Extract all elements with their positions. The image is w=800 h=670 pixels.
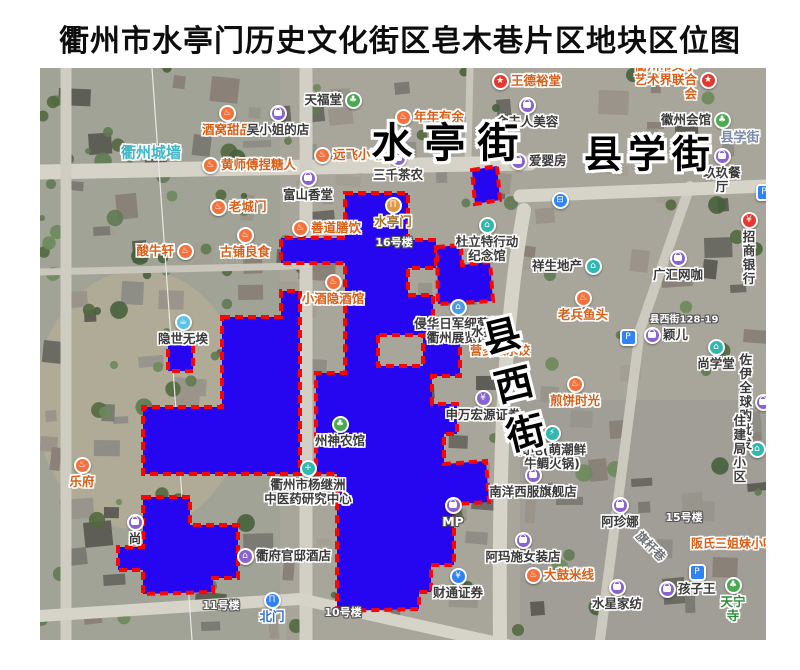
map-text-label: 衢州城墙 (121, 142, 181, 163)
poi-label: 招商银行 (741, 230, 758, 286)
shop-icon (714, 148, 731, 165)
park-icon: P (756, 184, 767, 201)
street-name-label: 水亭街 (372, 109, 531, 169)
poi-label: 隐世无埃 (158, 332, 208, 346)
poi-label: 天宁寺 (717, 595, 750, 623)
bus-icon: ⊟ (552, 192, 569, 209)
poi-label: 富山香堂 (283, 188, 333, 202)
map-canvas: ♨酒窝甜品吴小姐的店♣天福堂♨年年有余★王德裕堂★衢州市文学艺术界联合会♣徽州会… (40, 68, 766, 640)
food-icon: ♨ (219, 105, 236, 122)
scenic-icon: Π (385, 197, 402, 214)
poi-label: 黄师傅捏糖人 (221, 158, 296, 172)
poi-label: 老城门 (229, 200, 267, 214)
shop-icon (670, 250, 687, 267)
poi-label: 杜立特行动纪念馆 (456, 235, 519, 263)
bank-icon: ¥ (741, 212, 758, 229)
star-icon: ★ (492, 73, 509, 90)
food-icon: ♨ (567, 376, 584, 393)
parcel-highlight (472, 166, 500, 204)
shopping-bag-glyph (674, 255, 682, 261)
shop-icon (612, 497, 629, 514)
park-icon: P (689, 564, 706, 581)
shopping-bag-glyph (529, 472, 537, 478)
poi-label: 爱婴房 (529, 154, 567, 168)
poi-label: 小酒隐酒馆 (302, 292, 365, 306)
poi-label: 衢州市文学艺术界联合会 (628, 68, 697, 101)
shop-icon (300, 170, 317, 187)
green-icon: ♣ (332, 416, 349, 433)
poi-label: 州神农馆 (315, 434, 365, 448)
lightblue-icon: ☕ (175, 314, 192, 331)
shopping-bag-glyph (663, 586, 671, 592)
food-icon: ♨ (74, 457, 91, 474)
shopping-bag-glyph (131, 519, 139, 525)
poi-label: 南洋西服旗舰店 (489, 485, 577, 499)
parcel-highlight (168, 344, 193, 371)
poi-label: 水亭门 (374, 215, 412, 229)
med-icon: + (300, 460, 317, 477)
food-icon: ♨ (525, 567, 542, 584)
shop-icon (127, 514, 144, 531)
teal-icon: ⌂ (708, 339, 725, 356)
poi-label: 善道膳饮 (311, 221, 361, 235)
poi-label: 北门 (259, 610, 284, 624)
poi-label: 阿玛施女装店 (485, 550, 560, 564)
map-text-label: 阪氏三姐妹小吃 (691, 535, 766, 552)
map-text-label: 15号楼 (665, 509, 702, 525)
food-icon: ♨ (202, 157, 219, 174)
shop-icon (515, 532, 532, 549)
poi-label: 水星家纺 (592, 597, 642, 611)
food-icon: ♨ (314, 147, 331, 164)
poi-label: 衢州市杨继洲中医药研究中心 (264, 478, 352, 506)
poi-label: 住建局小区 (726, 414, 746, 484)
shop-icon (445, 497, 462, 514)
poi-label: 阿珍娜 (601, 515, 639, 529)
teal-icon: ⌂ (479, 217, 496, 234)
poi-label: 孩子王 (678, 582, 716, 596)
green-icon: ♣ (725, 577, 742, 594)
hotel-icon: ⌂ (237, 548, 254, 565)
poi-label: 吴小姐的店 (247, 123, 310, 137)
green-icon: ♣ (345, 92, 362, 109)
poi-label: 天福堂 (304, 93, 342, 107)
poi-label: 祥生地产 (532, 259, 582, 273)
shopping-bag-glyph (718, 153, 726, 159)
poi-label: 王德裕堂 (511, 74, 561, 88)
map-text-label: 县西街128-19 (650, 311, 719, 326)
poi-label: 尚学堂 (697, 357, 735, 371)
poi-label: 酒窝甜品 (202, 123, 252, 137)
shopping-bag-glyph (759, 399, 766, 405)
map-text-label: 16号楼 (375, 234, 412, 250)
map-text-label: 县学街 (720, 127, 759, 146)
shopping-bag-glyph (523, 102, 531, 108)
food-icon: ♨ (575, 290, 592, 307)
poi-label: 广汇网咖 (653, 268, 703, 282)
shopping-bag-glyph (519, 537, 527, 543)
food-icon: ♨ (292, 220, 309, 237)
poi-label: 老兵鱼头 (558, 308, 608, 322)
shopping-bag-glyph (274, 110, 282, 116)
shopping-bag-glyph (304, 175, 312, 181)
museum-icon: ⌂ (450, 299, 467, 316)
map-text-label: 10号楼 (324, 604, 361, 620)
poi-label: 颖儿 (663, 328, 688, 342)
poi-label: 煎饼时光 (550, 394, 600, 408)
poi-label: 乐府 (69, 475, 94, 489)
shop-icon (659, 581, 676, 598)
food-icon: ♨ (325, 274, 342, 291)
poi-label: 古铺良食 (220, 245, 270, 259)
park-icon: P (620, 329, 637, 346)
map-text-label: 11号楼 (202, 597, 239, 613)
shop-icon (755, 394, 767, 411)
star-icon: ★ (700, 72, 717, 89)
shopping-bag-glyph (648, 332, 656, 338)
street-name-label: 县学街 (584, 124, 716, 179)
poi-label: 财通证券 (433, 586, 483, 600)
poi-label: 酸牛轩 (136, 244, 174, 258)
shop-icon (609, 579, 626, 596)
teal-icon: ⌂ (585, 258, 602, 275)
poi-label: 三千茶农 (373, 168, 423, 182)
poi-label: 衢府官邸酒店 (256, 549, 331, 563)
finblue-icon: ¥ (450, 568, 467, 585)
shopping-bag-glyph (449, 502, 457, 508)
shop-icon (644, 327, 661, 344)
shopping-bag-glyph (616, 502, 624, 508)
poi-label: 尚 (129, 532, 142, 546)
poi-label: MP (442, 515, 464, 529)
shop-icon (270, 105, 287, 122)
shopping-bag-glyph (613, 584, 621, 590)
food-icon: ♨ (210, 199, 227, 216)
bluegate-icon: Π (264, 592, 281, 609)
food-icon: ♨ (177, 243, 194, 260)
poi-label: 大鼓米线 (544, 568, 594, 582)
food-icon: ♨ (237, 227, 254, 244)
page-title: 衢州市水亭门历史文化街区皂木巷片区地块区位图 (0, 16, 800, 60)
